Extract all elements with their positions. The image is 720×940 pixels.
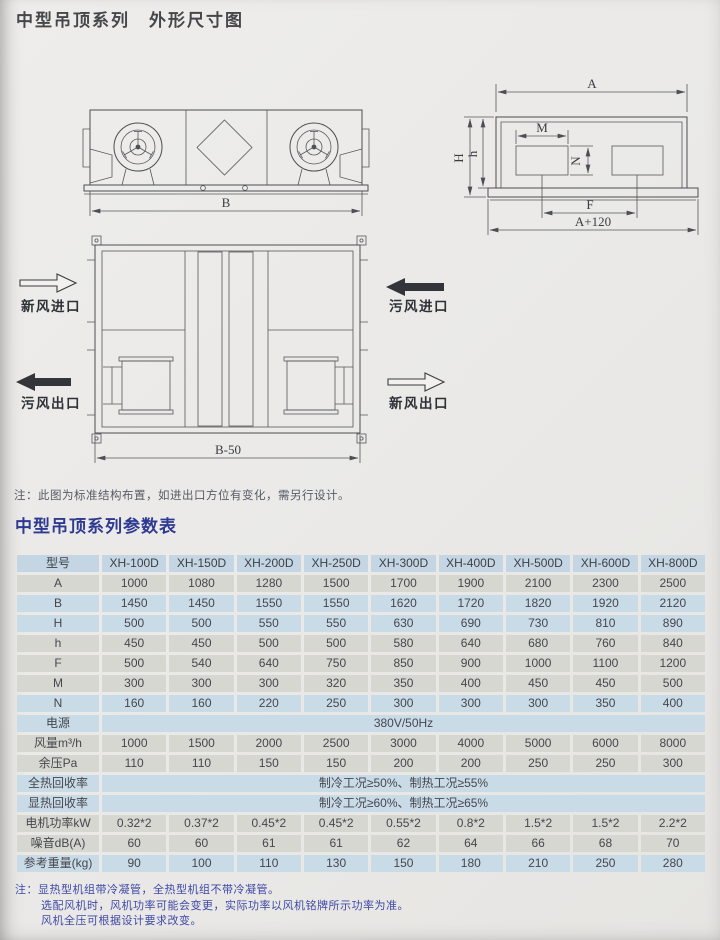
table-cell: 61 [304,835,368,852]
dimension-m-label: M [536,120,548,135]
table-cell: 4000 [439,735,503,752]
table-cell: 1100 [573,655,637,672]
column-header: XH-250D [304,555,368,572]
column-header: XH-500D [506,555,570,572]
column-header: XH-600D [573,555,637,572]
table-cell: 750 [304,655,368,672]
table-cell: 810 [573,615,637,632]
side-view-diagram: A M N H h F [440,62,720,242]
base-flange [488,188,698,197]
table-cell: 1450 [169,595,233,612]
table-cell: 160 [102,695,166,712]
dimension-f-label: F [586,197,593,212]
table-cell: 1550 [237,595,301,612]
row-label: 全热回收率 [17,775,99,792]
table-cell: 840 [641,635,705,652]
table-cell: 1550 [304,595,368,612]
table-cell: 730 [506,615,570,632]
row-label: 风量m³/h [17,735,99,752]
fan-box [284,357,353,414]
table-cell: 500 [304,635,368,652]
dimension-b-label: B [222,195,231,210]
table-title: 中型吊顶系列参数表 [15,512,177,537]
row-label: 余压Pa [17,755,99,772]
page-title: 中型吊顶系列 外形尺寸图 [16,6,244,31]
heat-exchanger-icon [197,120,252,175]
table-cell: 1720 [439,595,503,612]
column-header: XH-800D [641,555,705,572]
table-cell: 250 [304,695,368,712]
table-cell: 300 [237,675,301,692]
table-cell: 640 [439,635,503,652]
table-cell: 890 [641,615,705,632]
table-cell: 450 [102,635,166,652]
table-cell: 1280 [237,575,301,592]
table-cell: 300 [439,695,503,712]
table-cell: 150 [304,755,368,772]
table-cell: 110 [237,855,301,872]
table-cell: 1000 [506,655,570,672]
table-cell: 64 [439,835,503,852]
table-row: 参考重量(kg)90100110130150180210250280 [17,855,705,872]
table-cell: 0.37*2 [169,815,233,832]
table-cell: 66 [506,835,570,852]
diagram-note: 注：此图为标准结构布置，如进出口方位有变化，需另行设计。 [14,487,350,503]
catalog-page: 中型吊顶系列 外形尺寸图 [0,0,720,940]
heat-exchanger-core [198,252,253,426]
table-row: A100010801280150017001900210023002500 [17,575,705,592]
table-cell: 0.55*2 [371,815,435,832]
table-cell: 680 [506,635,570,652]
table-cell: 1920 [573,595,637,612]
table-cell: 200 [439,755,503,772]
table-cell: 250 [573,855,637,872]
table-cell: 90 [102,855,166,872]
footnotes: 注：显热型机组带冷凝管，全热型机组不带冷凝管。 选配风机时，风机功率可能会变更，… [15,884,409,931]
table-cell-span: 制冷工况≥60%、制热工况≥65% [102,795,705,812]
table-cell: 350 [573,695,637,712]
duct-flanges [87,260,368,415]
table-cell: 210 [506,855,570,872]
table-row: 风量m³/h1000150020002500300040005000600080… [17,735,705,752]
table-cell: 550 [304,615,368,632]
table-cell: 2500 [304,735,368,752]
top-view-diagram: B-50 新风进口 污风出口 污风进口 新风出口 [0,230,470,480]
fan-box [103,357,173,414]
table-cell: 400 [439,675,503,692]
table-header-row: 型号XH-100DXH-150DXH-200DXH-250DXH-300DXH-… [17,555,705,572]
column-header: XH-400D [439,555,503,572]
dimension-h-label: h [465,150,480,157]
table-cell: 60 [169,835,233,852]
table-row: H500500550550630690730810890 [17,615,705,632]
row-label: 噪音dB(A) [17,835,99,852]
table-cell: 1900 [439,575,503,592]
table-cell: 300 [169,675,233,692]
table-cell: 300 [102,675,166,692]
row-label: 显热回收率 [17,795,99,812]
table-row: N160160220250300300300350400 [17,695,705,712]
table-cell: 150 [237,755,301,772]
base-plate [84,185,368,191]
foul-air-outlet-label: 污风出口 [21,395,81,411]
side-flange [83,129,90,167]
table-cell: 250 [573,755,637,772]
table-cell: 6000 [573,735,637,752]
table-cell: 61 [237,835,301,852]
dimension-n: N [568,146,593,175]
column-header: XH-150D [169,555,233,572]
table-cell: 630 [371,615,435,632]
row-label: F [17,655,99,672]
table-cell: 1.5*2 [506,815,570,832]
table-cell-span: 380V/50Hz [102,715,705,732]
row-label: h [17,635,99,652]
table-cell: 70 [641,835,705,852]
dimension-h: h [465,119,488,188]
table-cell: 2000 [237,735,301,752]
front-view-diagram: B [80,103,372,223]
table-cell: 1000 [102,575,166,592]
column-header: XH-100D [102,555,166,572]
table-cell: 450 [169,635,233,652]
unit-casing-outline [496,117,687,188]
table-cell: 400 [641,695,705,712]
table-cell: 1620 [371,595,435,612]
row-label: 电机功率kW [17,815,99,832]
fresh-air-outlet-label: 新风出口 [389,395,449,411]
row-label: B [17,595,99,612]
table-cell: 220 [237,695,301,712]
table-cell: 500 [169,615,233,632]
table-cell: 500 [237,635,301,652]
table-cell: 130 [304,855,368,872]
table-row: 余压Pa110110150150200200250250300 [17,755,705,772]
foul-air-inlet-label: 污风进口 [389,298,449,314]
row-label: H [17,615,99,632]
table-cell: 110 [169,755,233,772]
side-flange [362,129,369,167]
dimension-a: A [496,76,687,112]
table-cell: 8000 [641,735,705,752]
column-header: XH-300D [371,555,435,572]
duct-opening [516,146,568,175]
table-cell: 1.5*2 [573,815,637,832]
dimension-b50: B-50 [95,435,360,463]
table-cell: 110 [102,755,166,772]
table-cell: 2500 [641,575,705,592]
table-cell: 2300 [573,575,637,592]
table-cell: 100 [169,855,233,872]
table-cell: 2100 [506,575,570,592]
table-cell: 68 [573,835,637,852]
table-cell: 1450 [102,595,166,612]
table-cell: 500 [102,615,166,632]
table-cell: 62 [371,835,435,852]
unit-casing-outline [95,245,360,433]
column-header: XH-200D [237,555,301,572]
table-row: 电机功率kW0.32*20.37*20.45*20.45*20.55*20.8*… [17,815,705,832]
table-cell: 1700 [371,575,435,592]
table-cell: 3000 [371,735,435,752]
footnote-line: 风机全压可根据设计要求改变。 [41,915,409,928]
table-cell: 450 [573,675,637,692]
table-row: 电源380V/50Hz [17,715,705,732]
dimension-b: B [90,191,362,216]
table-cell: 1200 [641,655,705,672]
table-cell: 280 [641,855,705,872]
table-cell: 250 [506,755,570,772]
fan-icon [90,123,162,185]
table-cell: 580 [371,635,435,652]
fresh-air-inlet-label: 新风进口 [21,298,81,314]
table-cell: 540 [169,655,233,672]
table-cell: 450 [506,675,570,692]
table-cell: 850 [371,655,435,672]
row-label: M [17,675,99,692]
dimension-a120-label: A+120 [575,214,611,229]
fresh-air-outlet-arrow-icon [388,373,444,391]
fresh-air-inlet-arrow-icon [20,274,76,292]
table-cell: 760 [573,635,637,652]
table-row: 噪音dB(A)606061616264666870 [17,835,705,852]
table-cell: 640 [237,655,301,672]
table-cell: 1820 [506,595,570,612]
row-label: 参考重量(kg) [17,855,99,872]
table-cell: 1000 [102,735,166,752]
table-cell: 150 [371,855,435,872]
table-cell: 300 [506,695,570,712]
table-cell: 0.8*2 [439,815,503,832]
table-cell: 1500 [169,735,233,752]
table-cell: 300 [371,695,435,712]
row-label: 电源 [17,715,99,732]
table-cell: 690 [439,615,503,632]
fan-icon [290,123,362,185]
table-cell: 900 [439,655,503,672]
table-cell: 320 [304,675,368,692]
table-cell: 1080 [169,575,233,592]
table-cell: 0.45*2 [237,815,301,832]
duct-opening [612,146,663,175]
table-cell: 500 [641,675,705,692]
column-header-model: 型号 [17,555,99,572]
dimension-m: M [516,120,568,144]
footnote-line: 注：显热型机组带冷凝管，全热型机组不带冷凝管。 [15,884,409,897]
table-cell: 300 [641,755,705,772]
dimension-n-label: N [568,156,583,166]
table-cell: 2.2*2 [641,815,705,832]
dimension-a-label: A [587,76,597,91]
table-cell: 200 [371,755,435,772]
dimension-H-label: H [451,153,466,162]
table-cell: 5000 [506,735,570,752]
table-row: F500540640750850900100011001200 [17,655,705,672]
table-row: 全热回收率制冷工况≥50%、制热工况≥55% [17,775,705,792]
row-label: A [17,575,99,592]
table-cell: 350 [371,675,435,692]
table-row: M300300300320350400450450500 [17,675,705,692]
table-cell: 2120 [641,595,705,612]
table-row: B145014501550155016201720182019202120 [17,595,705,612]
table-cell: 160 [169,695,233,712]
dimension-b50-label: B-50 [215,442,241,457]
table-cell-span: 制冷工况≥50%、制热工况≥55% [102,775,705,792]
table-row: h450450500500580640680760840 [17,635,705,652]
table-cell: 60 [102,835,166,852]
table-cell: 180 [439,855,503,872]
table-cell: 0.32*2 [102,815,166,832]
foul-air-outlet-arrow-icon [16,373,71,391]
table-cell: 1500 [304,575,368,592]
footnote-line: 选配风机时，风机功率可能会变更，实际功率以风机铭牌所示功率为准。 [41,900,409,913]
foul-air-inlet-arrow-icon [386,278,444,296]
parameters-table: 型号XH-100DXH-150DXH-200DXH-250DXH-300DXH-… [14,552,708,875]
table-cell: 500 [102,655,166,672]
table-cell: 0.45*2 [304,815,368,832]
table-row: 显热回收率制冷工况≥60%、制热工况≥65% [17,795,705,812]
table-cell: 550 [237,615,301,632]
row-label: N [17,695,99,712]
